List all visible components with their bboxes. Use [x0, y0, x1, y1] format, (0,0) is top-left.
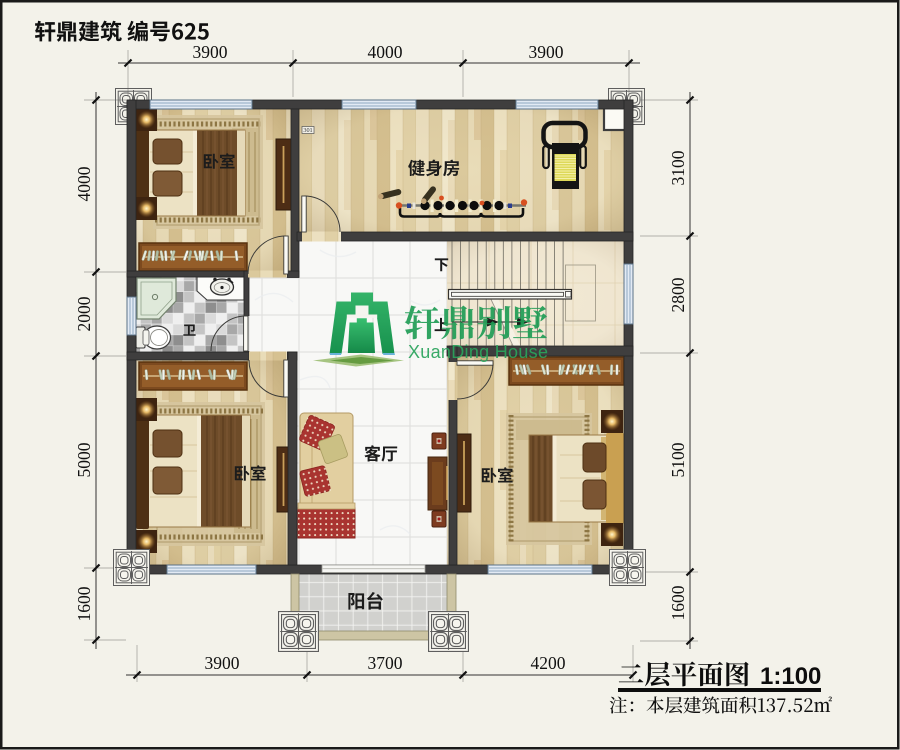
- svg-text:4000: 4000: [368, 42, 403, 62]
- svg-text:5000: 5000: [74, 442, 94, 477]
- svg-text:4000: 4000: [74, 166, 94, 201]
- svg-text:5100: 5100: [668, 442, 688, 477]
- svg-text:2800: 2800: [668, 277, 688, 312]
- svg-text:3900: 3900: [193, 42, 228, 62]
- svg-text:2000: 2000: [74, 296, 94, 331]
- svg-text:3700: 3700: [368, 653, 403, 673]
- svg-text:3900: 3900: [205, 653, 240, 673]
- svg-text:3900: 3900: [529, 42, 564, 62]
- svg-text:1600: 1600: [74, 586, 94, 621]
- svg-text:3100: 3100: [668, 150, 688, 185]
- svg-text:1600: 1600: [668, 585, 688, 620]
- svg-text:XuanDing House: XuanDing House: [408, 342, 548, 362]
- svg-text:301: 301: [303, 127, 312, 134]
- svg-text:4200: 4200: [531, 653, 566, 673]
- svg-text:1:100: 1:100: [760, 663, 821, 690]
